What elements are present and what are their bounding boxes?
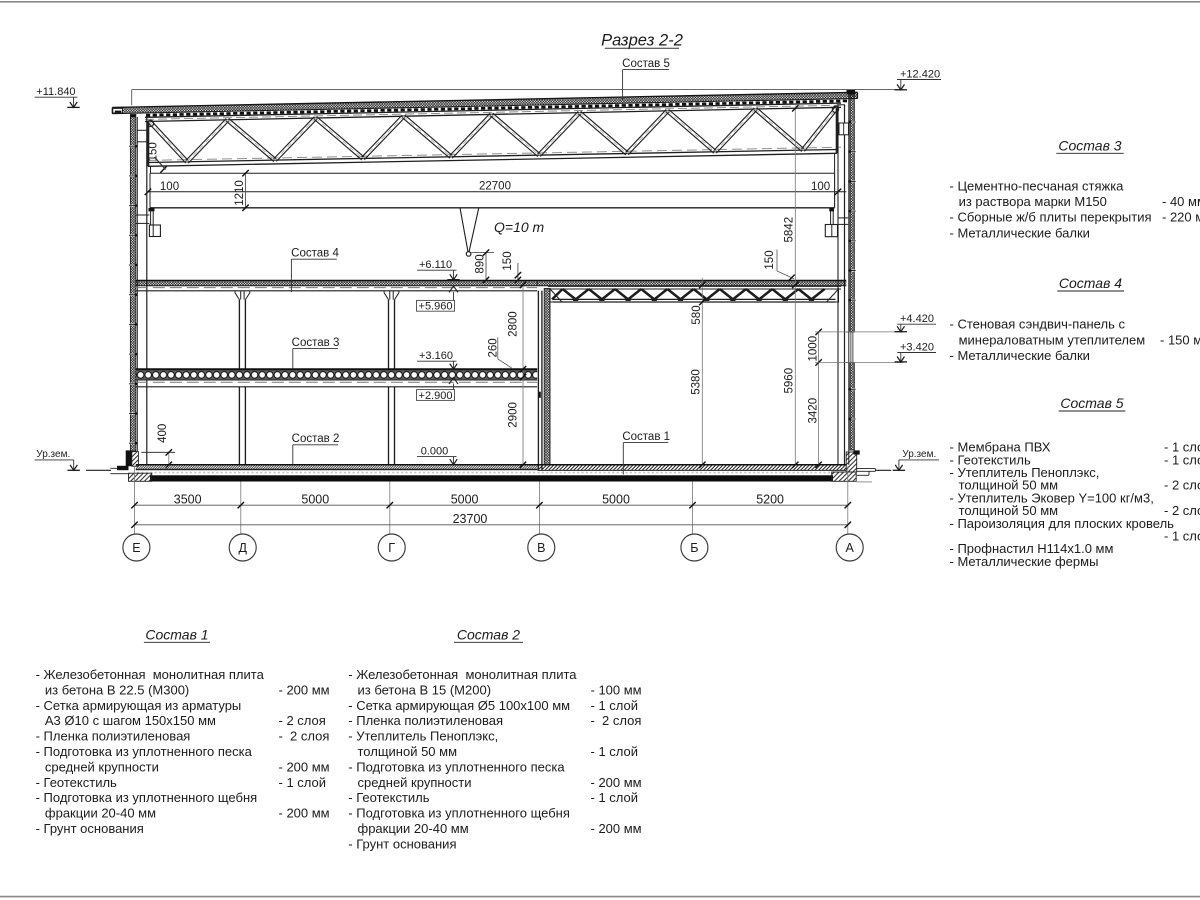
svg-text:- 2 слоя: - 2 слоя [279,729,330,744]
svg-text:- 1 слой: - 1 слой [591,744,639,759]
svg-text:+11.840: +11.840 [36,86,75,98]
svg-text:- Геотекстиль: - Геотекстиль [348,790,429,805]
svg-text:- 40 мм: - 40 мм [1162,194,1200,209]
svg-text:Ур.зем.: Ур.зем. [36,449,70,460]
svg-text:толщиной 50 мм: толщиной 50 мм [358,744,458,759]
svg-text:5380: 5380 [691,369,703,395]
svg-text:0.000: 0.000 [421,445,449,457]
svg-text:фракции 20-40 мм: фракции 20-40 мм [45,806,156,821]
svg-text:Разрез 2-2: Разрез 2-2 [601,32,683,50]
svg-text:- 200 мм: - 200 мм [279,759,330,774]
svg-text:580: 580 [691,305,703,324]
svg-text:- Подготовка из уплотненного п: - Подготовка из уплотненного песка [36,744,253,759]
svg-text:- 1 слой: - 1 слой [279,775,327,790]
svg-text:+6.110: +6.110 [419,259,452,271]
svg-text:- Сборные ж/б плиты перекрытия: - Сборные ж/б плиты перекрытия [950,210,1152,225]
svg-text:минераловатным утеплителем: минераловатным утеплителем [959,332,1146,347]
svg-text:+5.960: +5.960 [419,301,453,313]
svg-text:из раствора марки М150: из раствора марки М150 [959,194,1107,209]
svg-text:А3 Ø10 с шагом 150х150 мм: А3 Ø10 с шагом 150х150 мм [45,713,216,728]
svg-text:- Утеплитель Пеноплэкс,: - Утеплитель Пеноплэкс, [348,729,498,744]
svg-text:из бетона В 22.5 (М300): из бетона В 22.5 (М300) [45,682,189,697]
svg-text:- Пленка полиэтиленовая: - Пленка полиэтиленовая [348,713,503,728]
svg-text:- Металлические балки: - Металлические балки [950,225,1090,240]
svg-text:- 1 слой: - 1 слой [1164,529,1200,544]
svg-text:Б: Б [690,541,698,555]
svg-text:Состав 3: Состав 3 [292,337,340,349]
svg-text:- Металлические балки: - Металлические балки [950,348,1090,363]
svg-text:100: 100 [160,181,179,193]
svg-text:- Подготовка из уплотненного п: - Подготовка из уплотненного песка [348,759,565,774]
svg-text:1210: 1210 [234,180,246,206]
svg-text:+12.420: +12.420 [900,68,940,80]
svg-text:- 200 мм: - 200 мм [591,775,642,790]
svg-text:- Грунт основания: - Грунт основания [36,821,144,836]
svg-text:- 2 слоя: - 2 слоя [591,713,642,728]
svg-text:Состав 5: Состав 5 [1060,395,1123,411]
svg-text:- Сетка армирующая Ø5 100х100: - Сетка армирующая Ø5 100х100 мм [348,698,570,713]
svg-text:- 220 мм: - 220 мм [1162,210,1200,225]
svg-text:2800: 2800 [508,311,520,337]
svg-text:Состав 2: Состав 2 [292,433,340,445]
svg-text:Q=10 m: Q=10 m [494,219,545,235]
svg-text:средней крупности: средней крупности [358,775,472,790]
svg-text:+3.160: +3.160 [419,350,453,362]
svg-text:+3.420: +3.420 [900,341,934,353]
svg-text:Состав 4: Состав 4 [291,248,339,260]
svg-text:- Стеновая сэндвич-панель с: - Стеновая сэндвич-панель с [950,317,1126,332]
svg-text:Ур.зем.: Ур.зем. [902,449,936,460]
svg-text:- Подготовка из уплотненного щ: - Подготовка из уплотненного щебня [348,806,570,821]
svg-text:- Геотекстиль: - Геотекстиль [36,775,117,790]
svg-text:150: 150 [764,250,776,269]
svg-text:- 200 мм: - 200 мм [279,682,330,697]
svg-text:В: В [537,541,545,555]
svg-text:средней крупности: средней крупности [45,759,159,774]
svg-text:Д: Д [238,541,247,555]
svg-text:- Пленка полиэтиленовая: - Пленка полиэтиленовая [36,729,191,744]
svg-text:Е: Е [132,541,140,555]
svg-text:150: 150 [502,251,514,270]
svg-text:- 1 слой: - 1 слой [591,698,639,713]
svg-text:3500: 3500 [174,492,202,506]
svg-text:+2.900: +2.900 [419,390,453,402]
svg-text:- Металлические фермы: - Металлические фермы [950,554,1099,569]
svg-text:5000: 5000 [451,492,479,506]
svg-text:5960: 5960 [784,368,796,394]
svg-text:Состав 1: Состав 1 [145,626,208,642]
svg-text:- 1 слой: - 1 слой [591,790,639,805]
svg-text:Состав 4: Состав 4 [1059,275,1122,291]
svg-text:- 200 мм: - 200 мм [279,806,330,821]
svg-text:- Железобетонная монолитная п: - Железобетонная монолитная плита [36,667,265,682]
svg-text:23700: 23700 [453,512,488,526]
svg-text:890: 890 [475,254,487,273]
svg-text:- Подготовка из уплотненного щ: - Подготовка из уплотненного щебня [36,790,258,805]
svg-text:- Железобетонная монолитная п: - Железобетонная монолитная плита [348,667,577,682]
svg-text:400: 400 [157,424,169,443]
svg-text:5000: 5000 [602,492,630,506]
svg-text:Состав 1: Состав 1 [622,431,670,443]
svg-text:- 200 мм: - 200 мм [591,821,642,836]
svg-text:фракции 20-40 мм: фракции 20-40 мм [358,821,469,836]
svg-text:Г: Г [388,541,395,555]
svg-text:из бетона В 15 (М200): из бетона В 15 (М200) [358,682,492,697]
svg-text:3420: 3420 [808,398,820,424]
svg-text:+4.420: +4.420 [900,313,934,325]
svg-text:А: А [846,541,855,555]
svg-text:Состав 2: Состав 2 [457,626,520,642]
svg-text:- 150 мм: - 150 мм [1160,332,1200,347]
svg-text:22700: 22700 [479,180,511,192]
svg-text:5842: 5842 [784,217,796,243]
svg-text:- 1 слой: - 1 слой [1164,452,1200,467]
svg-text:2900: 2900 [508,402,520,428]
svg-text:- Цементно-песчаная стяжка: - Цементно-песчаная стяжка [950,178,1125,193]
svg-text:- 100 мм: - 100 мм [591,682,642,697]
svg-text:5200: 5200 [756,492,784,506]
svg-text:1000: 1000 [808,336,820,362]
svg-text:- 2 слоя: - 2 слоя [1164,478,1200,493]
svg-text:150: 150 [148,142,160,161]
svg-text:Состав 5: Состав 5 [622,58,670,70]
svg-text:5000: 5000 [301,492,329,506]
svg-text:- Пароизоляция для плоских кро: - Пароизоляция для плоских кровель [950,516,1175,531]
svg-text:- Грунт основания: - Грунт основания [348,836,456,851]
svg-text:Состав 3: Состав 3 [1058,137,1121,153]
svg-text:100: 100 [811,181,830,193]
svg-text:- Сетка армирующая из арматуры: - Сетка армирующая из арматуры [36,698,242,713]
svg-text:- 2 слоя: - 2 слоя [279,713,326,728]
